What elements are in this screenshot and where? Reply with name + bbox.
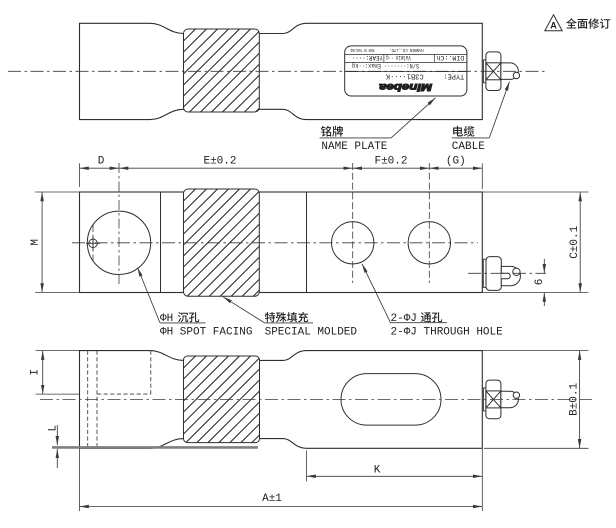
svg-text:C±0.1: C±0.1 (569, 225, 581, 258)
svg-text:DIM.:Ch: DIM.:Ch (436, 54, 464, 61)
svg-text:ΦH SPOT FACING: ΦH SPOT FACING (160, 327, 252, 339)
svg-text:I: I (30, 369, 42, 376)
svg-text:SPECIAL MOLDED: SPECIAL MOLDED (265, 327, 358, 339)
svg-text:A: A (550, 21, 557, 31)
svg-text:C3B1····K: C3B1····K (385, 71, 424, 79)
svg-text:HANBEN CO.,LTD.: HANBEN CO.,LTD. (389, 47, 423, 51)
svg-text:A±1: A±1 (262, 493, 282, 505)
svg-text:2-ΦJ THROUGH HOLE: 2-ΦJ THROUGH HOLE (391, 327, 504, 339)
svg-text:L: L (48, 425, 60, 432)
svg-text:S/N:······· Emax:··kg: S/N:······· Emax:··kg (352, 62, 419, 69)
svg-text:K: K (374, 465, 381, 477)
svg-text:Valmin ··g: Valmin ··g (386, 54, 411, 61)
svg-text:6: 6 (534, 279, 546, 286)
svg-text:M: M (30, 239, 42, 246)
svg-text:Minebea: Minebea (379, 81, 433, 92)
svg-text:D: D (98, 156, 105, 168)
svg-text:E±0.2: E±0.2 (203, 156, 236, 168)
svg-text:TYPE:: TYPE: (443, 71, 464, 79)
svg-text:MADE IN THAILAND: MADE IN THAILAND (350, 47, 374, 51)
svg-text:YEAR:····: YEAR:···· (352, 54, 383, 61)
svg-text:F±0.2: F±0.2 (374, 156, 407, 168)
svg-text:ΦH: ΦH (160, 313, 173, 325)
svg-text:NAME PLATE: NAME PLATE (321, 141, 387, 153)
svg-text:B±0.1: B±0.1 (569, 383, 581, 416)
svg-text:CABLE: CABLE (452, 141, 485, 153)
svg-text:(G): (G) (446, 156, 466, 168)
svg-text:2-ΦJ: 2-ΦJ (391, 313, 417, 325)
